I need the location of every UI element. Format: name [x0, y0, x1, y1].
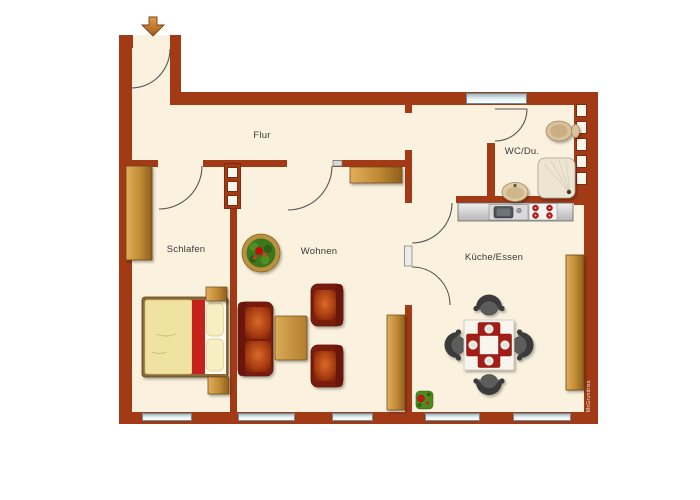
- window-bottom-5: [513, 413, 571, 421]
- floor-entry-corridor: [132, 48, 170, 108]
- room-label-wohnen: Wohnen: [301, 246, 337, 257]
- wall-mid-right: [333, 160, 412, 167]
- entrance-arrow-icon: [142, 17, 164, 36]
- wall-mid-left: [128, 160, 158, 167]
- window-top: [466, 93, 527, 104]
- shaft-box: [227, 167, 238, 178]
- floor-entrance-opening: [133, 35, 170, 48]
- wall-mid-center: [203, 160, 287, 167]
- wall-wohnen-kueche-mid: [405, 150, 412, 203]
- installation-shaft-right-box: [576, 138, 587, 151]
- room-label-flur: Flur: [253, 130, 270, 141]
- window-bottom-2: [238, 413, 295, 421]
- wall-entry-corner: [119, 35, 133, 48]
- floor-plan: Flur Schlafen Wohnen Küche/Essen WC/Du. …: [0, 0, 700, 500]
- wall-kitchen-top: [456, 196, 584, 203]
- wall-wc-left: [487, 143, 495, 203]
- wall-wohnen-kueche-bottom: [405, 305, 412, 412]
- installation-shaft-right-box: [576, 172, 587, 185]
- watermark-text: McGrundriss: [586, 372, 592, 412]
- window-bottom-3: [332, 413, 373, 421]
- window-bottom-4: [425, 413, 480, 421]
- shaft-box: [227, 195, 238, 206]
- wall-top: [170, 92, 598, 105]
- installation-shaft-right-box: [576, 155, 587, 168]
- wall-schlafen-wohnen: [230, 207, 237, 412]
- installation-shaft-right-box: [576, 121, 587, 134]
- installation-shaft-right-box: [576, 104, 587, 117]
- shaft-box: [227, 181, 238, 192]
- window-bottom-1: [142, 413, 192, 421]
- room-label-kueche: Küche/Essen: [465, 252, 523, 263]
- room-label-wc: WC/Du.: [505, 146, 539, 157]
- room-label-schlafen: Schlafen: [167, 244, 206, 255]
- wall-left: [119, 35, 132, 424]
- wall-kitchen-stub-top: [405, 105, 412, 113]
